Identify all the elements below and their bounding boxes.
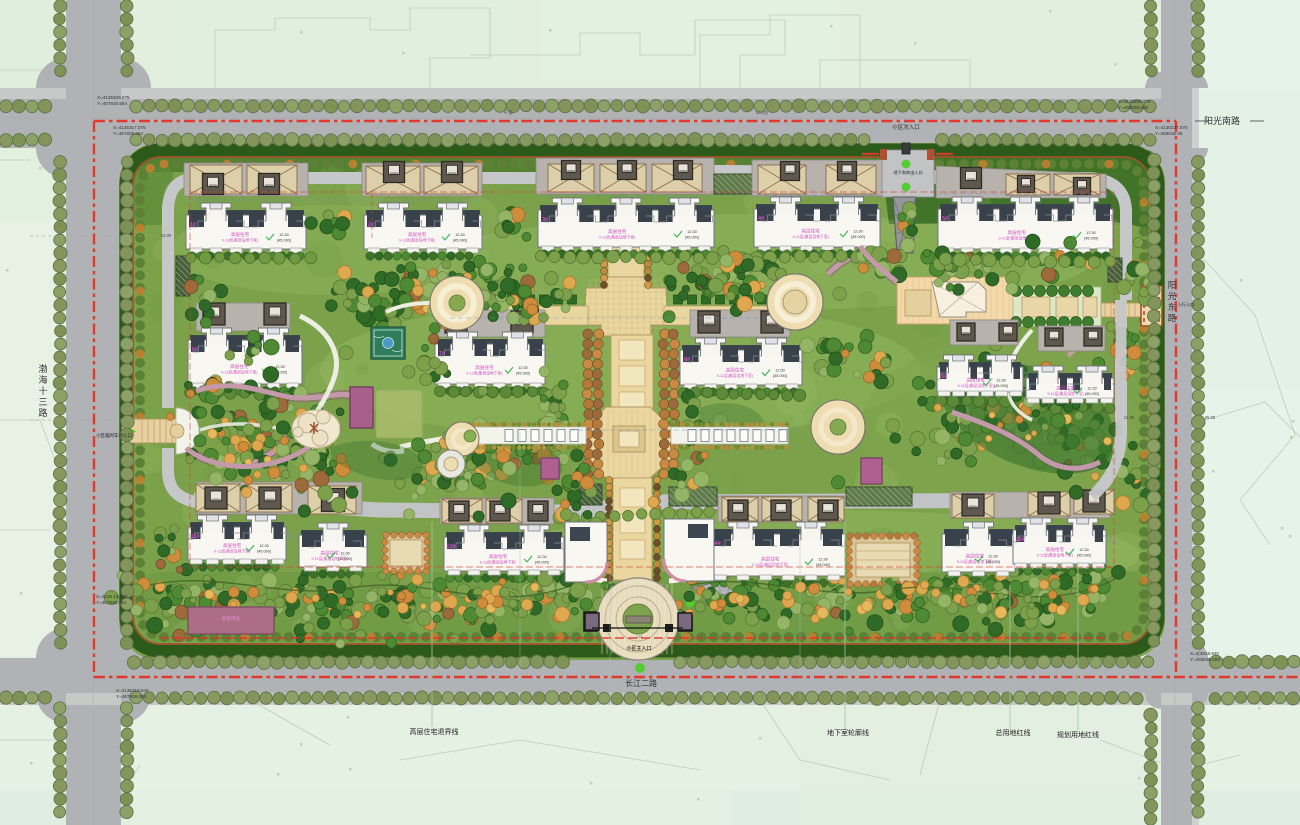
svg-text:[45.000]: [45.000] [277,238,291,242]
svg-text:5#: 5# [942,216,948,222]
svg-text:8#: 8# [684,357,690,363]
svg-text:高层住宅: 高层住宅 [608,228,627,235]
svg-text:9-11层(象层设地下室): 9-11层(象层设地下室) [599,235,636,240]
svg-text:[45.000]: [45.000] [1085,392,1099,396]
svg-text:东: 东 [1168,302,1177,312]
svg-text:15.00: 15.00 [161,233,172,238]
svg-text:6#: 6# [192,347,198,353]
svg-text:规划用地红线: 规划用地红线 [1057,730,1099,739]
svg-text:12.30: 12.30 [853,230,863,234]
svg-text:高层住宅: 高层住宅 [966,553,985,560]
svg-text:[45.000]: [45.000] [1077,553,1091,557]
svg-text:12.30: 12.30 [988,555,998,559]
svg-text:12.30: 12.30 [259,544,269,548]
svg-text:高层住宅: 高层住宅 [475,364,494,371]
svg-text:Y=467926.084: Y=467926.084 [96,600,126,605]
svg-text:12.30: 12.30 [996,378,1006,382]
svg-text:X=4136317.075: X=4136317.075 [113,125,146,130]
svg-text:[45.000]: [45.000] [851,235,865,239]
svg-text:高层住宅: 高层住宅 [231,231,250,238]
svg-text:X=4136316.940: X=4136316.940 [116,688,149,693]
svg-text:Y=468036.08: Y=468036.08 [1155,131,1183,136]
svg-text:12.30: 12.30 [1079,548,1089,552]
svg-text:9-11层(象层设地下室): 9-11层(象层设地下室) [717,373,754,378]
svg-text:[45.000]: [45.000] [816,563,830,567]
svg-text:长江二路: 长江二路 [625,678,657,688]
svg-text:12.30: 12.30 [537,555,547,559]
svg-text:X=4(3818.940: X=4(3818.940 [1190,651,1219,656]
svg-text:9-11层(象层设地下室): 9-11层(象层设地下室) [1037,552,1074,557]
svg-text:9-11层(象层设地下室): 9-11层(象层设地下室) [222,237,259,242]
svg-text:路: 路 [38,407,47,418]
svg-text:高层住宅: 高层住宅 [802,228,821,235]
svg-text:9#: 9# [941,374,947,380]
svg-text:[45.000]: [45.000] [986,560,1000,564]
svg-text:12.30: 12.30 [518,366,528,370]
svg-text:3#: 3# [542,217,548,223]
svg-text:平.西: 平.西 [503,110,512,115]
svg-text:9-11层(象层设地下室): 9-11层(象层设地下室) [214,549,251,554]
svg-text:Y=467928.684: Y=467928.684 [97,101,127,106]
svg-text:小区主入口: 小区主入口 [626,645,651,652]
svg-text:[45.000]: [45.000] [773,374,787,378]
svg-text:12.30: 12.30 [279,233,289,237]
svg-text:12.30: 12.30 [687,230,697,234]
svg-text:X=4136326.075: X=4136326.075 [1118,99,1151,104]
svg-text:9-11层(象层设地下室): 9-11层(象层设地下室) [466,371,503,376]
svg-text:4#: 4# [758,216,764,222]
svg-text:Y=468036.080: Y=468036.080 [1190,657,1220,662]
svg-text:Y=467928.084: Y=467928.084 [116,694,146,699]
svg-text:12.30: 12.30 [1087,386,1097,390]
svg-text:12.30: 12.30 [275,365,285,369]
svg-text:高层住宅: 高层住宅 [1046,546,1065,553]
svg-text:7#: 7# [439,351,445,357]
svg-text:12.00: 12.00 [1124,415,1135,420]
svg-text:总用地红线: 总用地红线 [996,728,1031,737]
svg-text:[45.000]: [45.000] [516,372,530,376]
svg-text:2#: 2# [368,222,374,228]
svg-text:入口: 入口 [636,634,644,639]
svg-text:Y=468036.686: Y=468036.686 [1118,105,1148,110]
svg-text:高层住宅: 高层住宅 [223,542,242,549]
svg-text:16#: 16# [1015,537,1024,543]
svg-text:阳: 阳 [1168,280,1177,290]
svg-text:12.30: 12.30 [775,369,785,373]
svg-text:高层住宅: 高层住宅 [761,556,780,563]
svg-text:渤: 渤 [38,363,47,374]
svg-text:13#: 13# [446,544,455,550]
svg-text:地下车库出入口: 地下车库出入口 [893,169,922,176]
svg-text:9-11层(象层设地下室): 9-11层(象层设地下室) [957,383,994,388]
svg-text:12.30: 12.30 [818,558,828,562]
svg-text:[45.000]: [45.000] [257,550,271,554]
svg-text:X=4130237.075: X=4130237.075 [1155,125,1188,130]
svg-text:12.30: 12.30 [340,551,350,555]
svg-text:12.30: 12.30 [1086,231,1096,235]
svg-text:高层住宅: 高层住宅 [320,549,339,556]
svg-text:9-11层(象层设地下室): 9-11层(象层设地下室) [480,559,517,564]
svg-text:9-11层(象层设地下室): 9-11层(象层设地下室) [752,562,789,567]
svg-text:9-11层(象层设地下室): 9-11层(象层设地下室) [399,237,436,242]
svg-text:[45.000]: [45.000] [535,560,549,564]
svg-text:[45.000]: [45.000] [453,238,467,242]
svg-text:9-11层(象层设地下室): 9-11层(象层设地下室) [792,234,829,239]
svg-text:海: 海 [38,374,47,385]
svg-text:配套用房: 配套用房 [222,615,240,622]
svg-text:40.2西: 40.2西 [756,110,768,115]
svg-text:X=4136329.075: X=4136329.075 [97,95,130,100]
svg-text:高层住宅: 高层住宅 [1056,384,1075,391]
svg-text:光: 光 [1168,291,1177,301]
svg-text:高层住宅: 高层住宅 [967,376,986,383]
svg-text:高层住宅: 高层住宅 [408,231,427,238]
svg-text:11#: 11# [191,534,200,540]
svg-text:三: 三 [38,397,47,407]
svg-text:高层住宅: 高层住宅 [489,553,508,560]
svg-text:小区次入口: 小区次入口 [892,123,920,131]
svg-text:高层住宅退界线: 高层住宅退界线 [410,727,459,736]
svg-text:Y=467929.684: Y=467929.684 [113,131,143,136]
svg-text:十: 十 [38,385,47,396]
svg-text:高层住宅: 高层住宅 [726,367,745,374]
svg-text:[45.000]: [45.000] [338,557,352,561]
svg-text:阳光南路: 阳光南路 [1204,115,1240,126]
svg-text:人行入口: 人行入口 [1178,301,1195,308]
svg-text:9-11层(象层设地下室): 9-11层(象层设地下室) [221,370,258,375]
svg-text:12.30: 12.30 [455,233,465,237]
svg-text:25.00: 25.00 [1205,415,1216,420]
svg-text:高层住宅: 高层住宅 [1008,229,1027,236]
svg-text:X=4136 13.940: X=4136 13.940 [96,594,128,599]
svg-text:[45.000]: [45.000] [685,236,699,240]
svg-text:小区临时车停入口: 小区临时车停入口 [96,432,132,439]
svg-text:路: 路 [1168,313,1177,323]
svg-text:[45.000]: [45.000] [994,384,1008,388]
svg-text:[45.000]: [45.000] [1084,237,1098,241]
svg-text:1#: 1# [190,222,196,228]
svg-text:地下室轮廓线: 地下室轮廓线 [827,728,869,737]
